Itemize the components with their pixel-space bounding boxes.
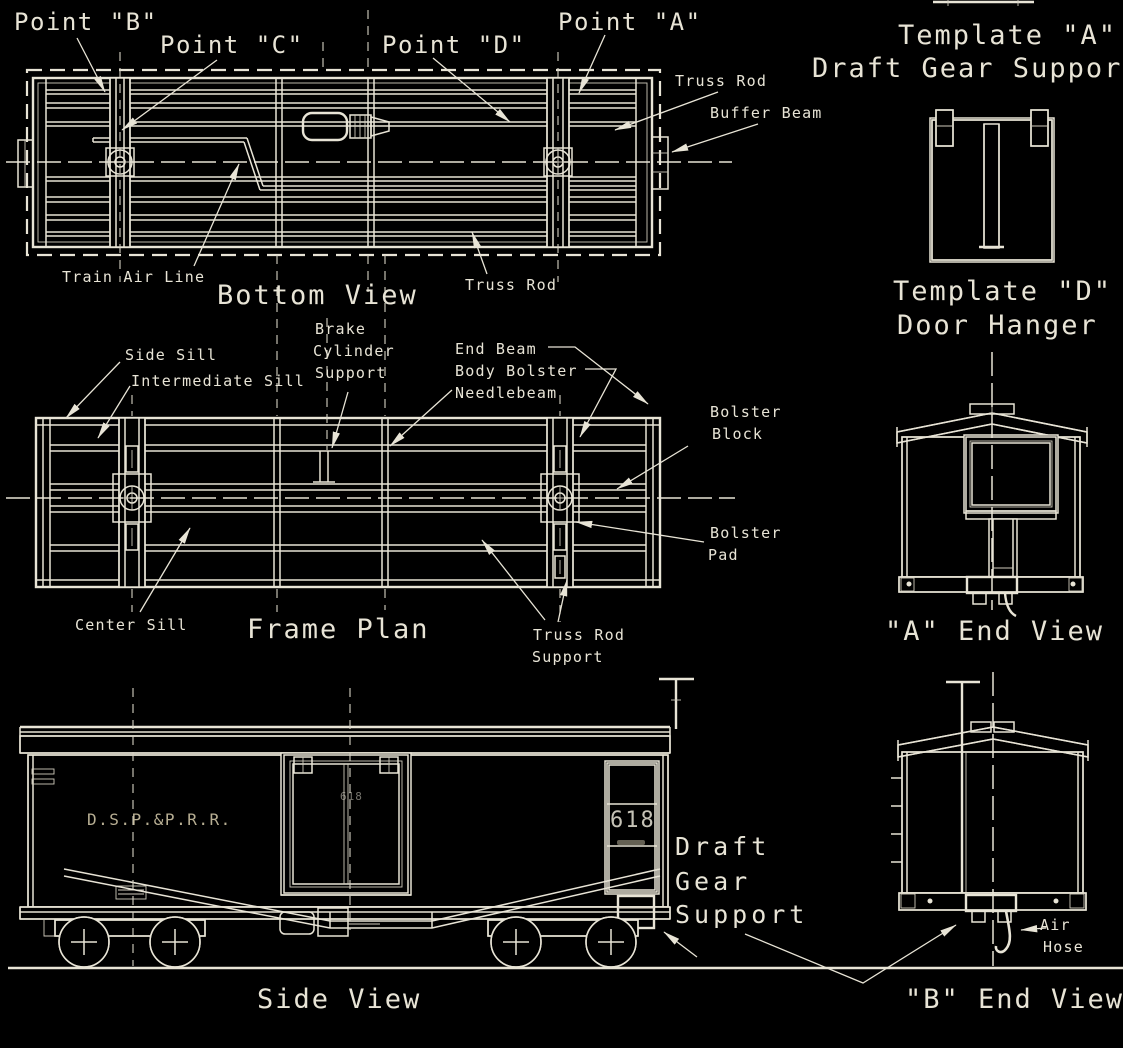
template-a-subtitle: Draft Gear Support bbox=[812, 55, 1123, 82]
caption-a-end-view: "A" End View bbox=[885, 618, 1104, 645]
caption-b-end-view: "B" End View bbox=[905, 986, 1123, 1013]
callout-bolster-pad-1: Bolster bbox=[710, 526, 782, 541]
frame-plan-drawing bbox=[6, 418, 735, 587]
callout-train-air-line: Train Air Line bbox=[62, 270, 205, 285]
callout-air-hose-1: Air bbox=[1040, 918, 1071, 933]
callout-buffer-beam: Buffer Beam bbox=[710, 106, 823, 121]
callout-air-hose-2: Hose bbox=[1043, 940, 1084, 955]
callout-point-b: Point "B" bbox=[14, 10, 158, 34]
blueprint-page: Point "B" Point "C" Point "D" Point "A" … bbox=[0, 0, 1123, 1048]
callout-intermediate-sill: Intermediate Sill bbox=[131, 374, 305, 389]
car-door-number: 618 bbox=[340, 791, 363, 802]
callout-end-beam: End Beam bbox=[455, 342, 537, 357]
caption-frame-plan: Frame Plan bbox=[247, 616, 430, 643]
car-reporting-marks: D.S.P.&P.R.R. bbox=[87, 812, 232, 828]
callout-body-bolster: Body Bolster bbox=[455, 364, 578, 379]
callout-truss-rod-support-2: Support bbox=[532, 650, 604, 665]
callout-draft-gear-support-2: Gear bbox=[675, 869, 751, 894]
callout-truss-rod-support-1: Truss Rod bbox=[533, 628, 625, 643]
callout-bolster-pad-2: Pad bbox=[708, 548, 739, 563]
template-a-drawing bbox=[930, 110, 1054, 262]
callout-draft-gear-support-3: Support bbox=[675, 902, 808, 927]
callout-truss-rod-lower: Truss Rod bbox=[465, 278, 557, 293]
callout-brake-cylinder-support-1: Brake bbox=[315, 322, 366, 337]
callout-side-sill: Side Sill bbox=[125, 348, 217, 363]
car-end-number: 618 bbox=[610, 810, 656, 832]
b-end-view-drawing bbox=[891, 682, 1088, 952]
callout-truss-rod-upper: Truss Rod bbox=[675, 74, 767, 89]
callout-bolster-block-2: Block bbox=[712, 427, 763, 442]
callout-brake-cylinder-support-2: Cylinder bbox=[313, 344, 395, 359]
callout-draft-gear-support-1: Draft bbox=[675, 834, 770, 859]
callout-point-c: Point "C" bbox=[160, 33, 304, 57]
callout-point-a: Point "A" bbox=[558, 10, 702, 34]
callout-center-sill: Center Sill bbox=[75, 618, 188, 633]
bottom-view-drawing bbox=[6, 70, 732, 255]
template-d-title: Template "D" bbox=[893, 278, 1112, 305]
template-a-title: Template "A" bbox=[898, 22, 1117, 49]
callout-point-d: Point "D" bbox=[382, 33, 526, 57]
caption-bottom-view: Bottom View bbox=[217, 282, 418, 309]
callout-needlebeam: Needlebeam bbox=[455, 386, 557, 401]
linework-svg bbox=[0, 0, 1123, 1048]
template-d-subtitle: Door Hanger bbox=[897, 312, 1098, 339]
caption-side-view: Side View bbox=[257, 986, 421, 1013]
callout-brake-cylinder-support-3: Support bbox=[315, 366, 387, 381]
top-edge-fragment bbox=[933, 0, 1034, 6]
callout-bolster-block-1: Bolster bbox=[710, 405, 782, 420]
